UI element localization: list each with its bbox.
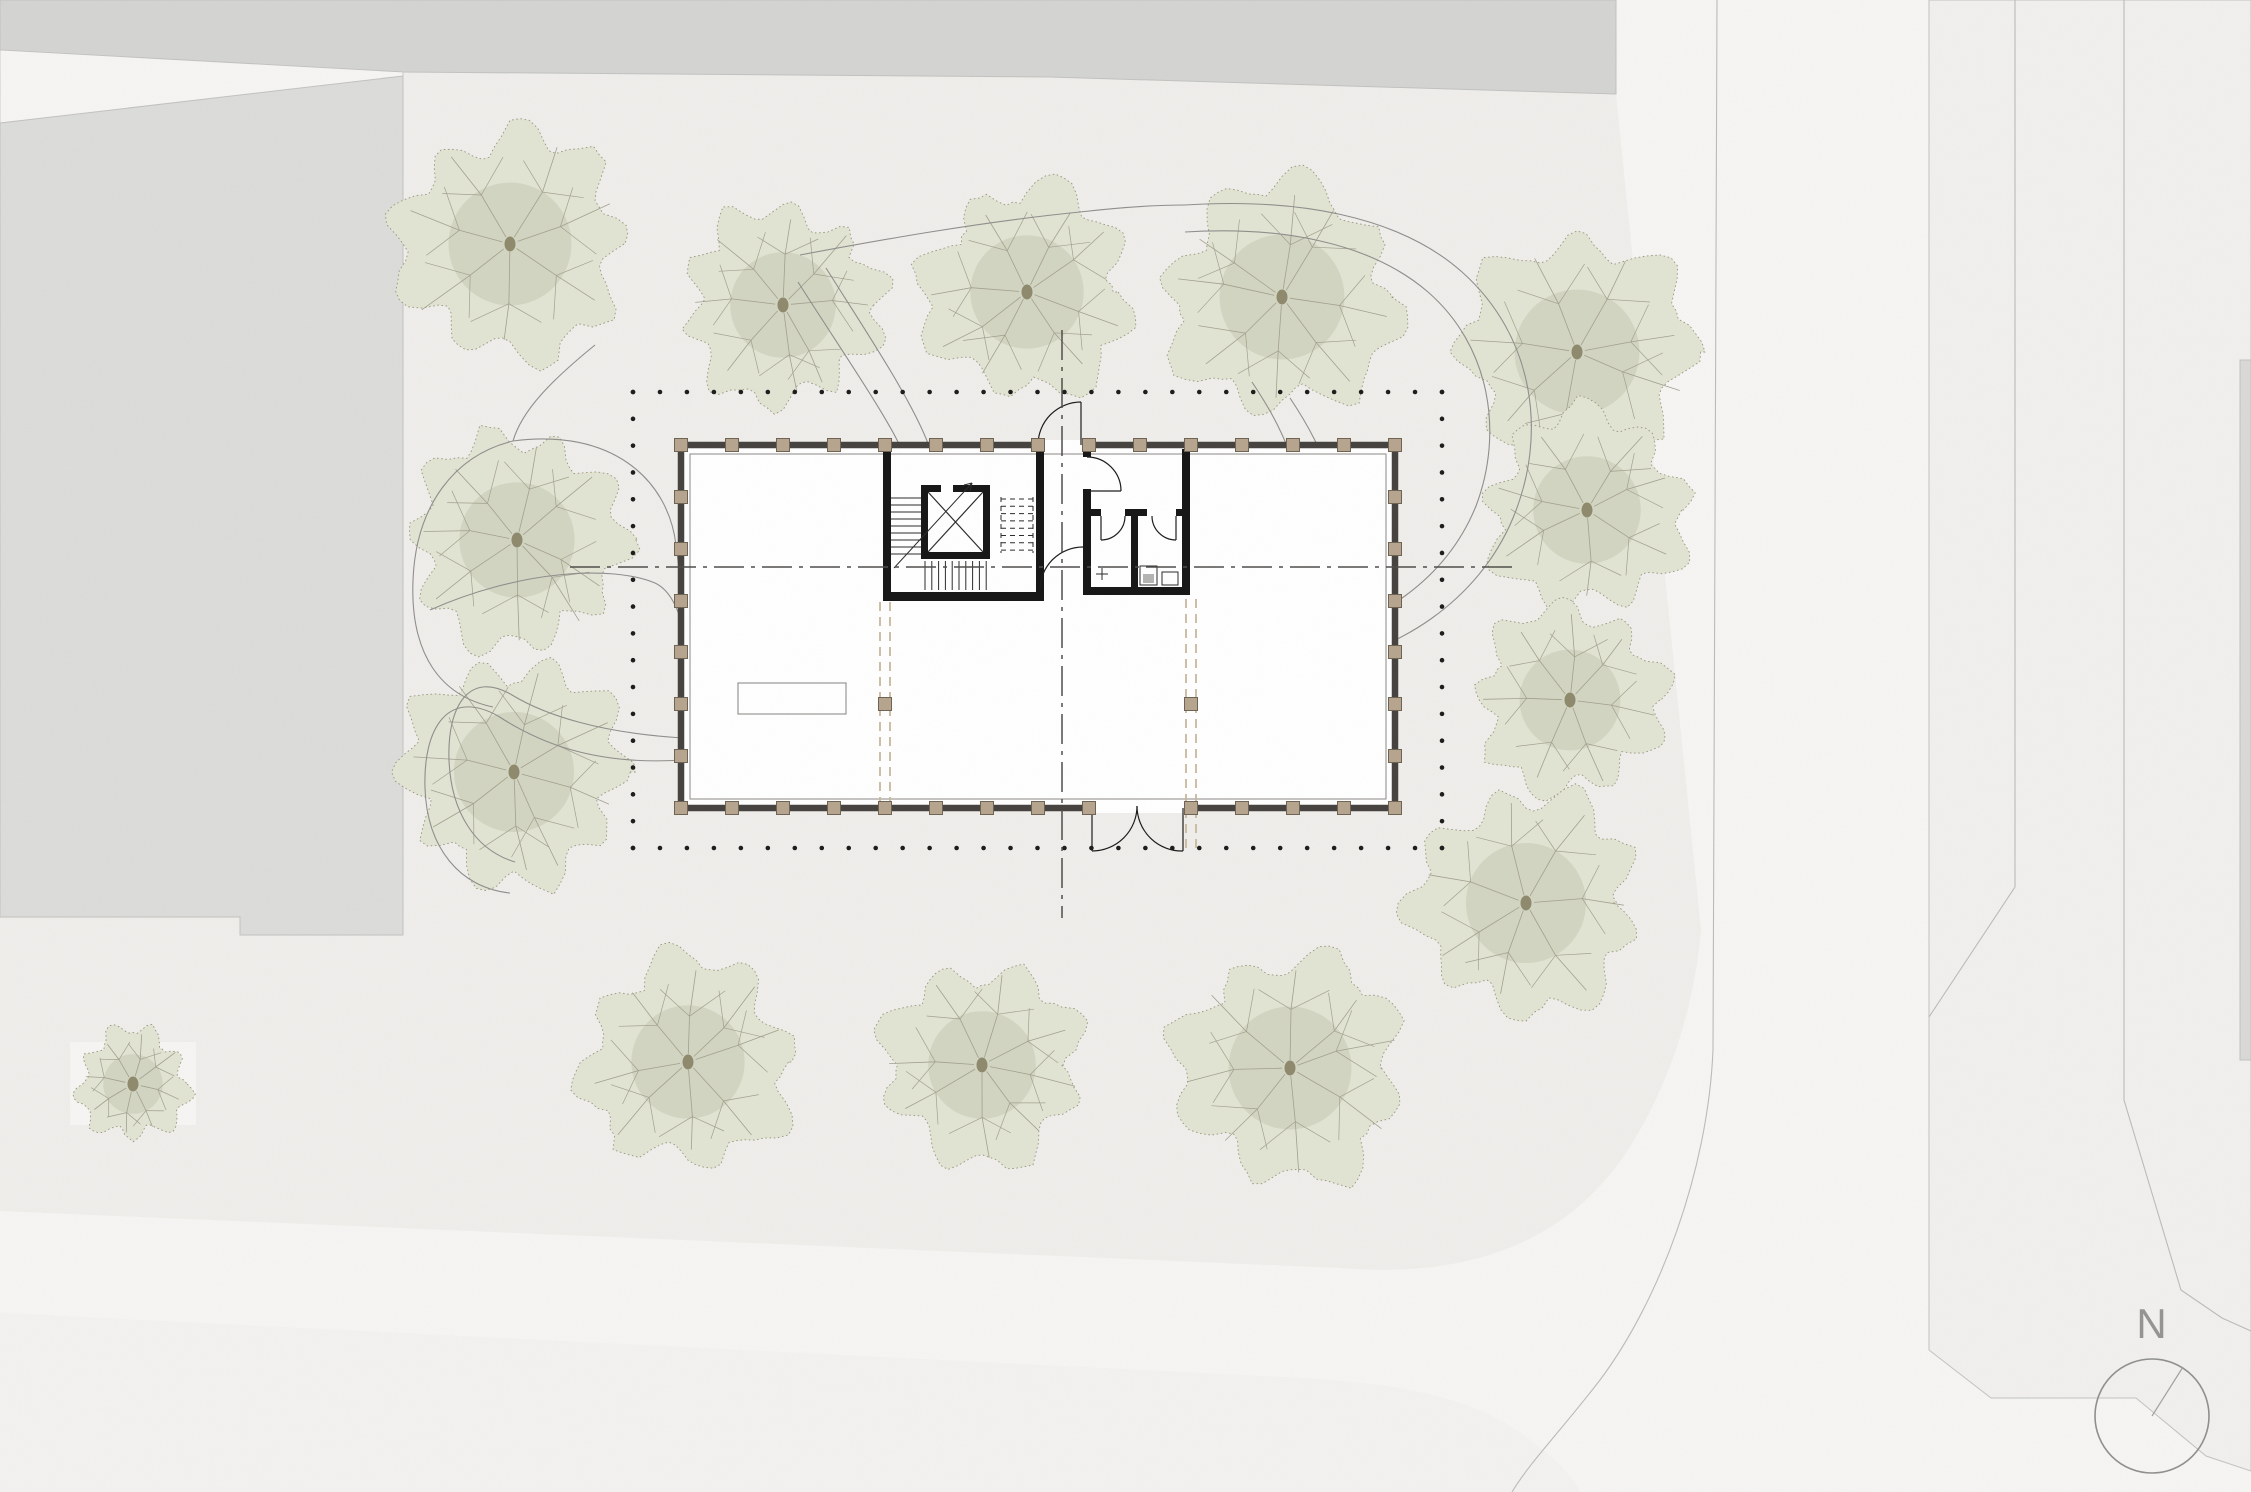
site-plan: N	[0, 0, 2251, 1492]
site-plan-drawing	[0, 0, 2251, 1492]
paper-grain-overlay	[0, 0, 2251, 1492]
north-label: N	[2120, 1300, 2184, 1348]
